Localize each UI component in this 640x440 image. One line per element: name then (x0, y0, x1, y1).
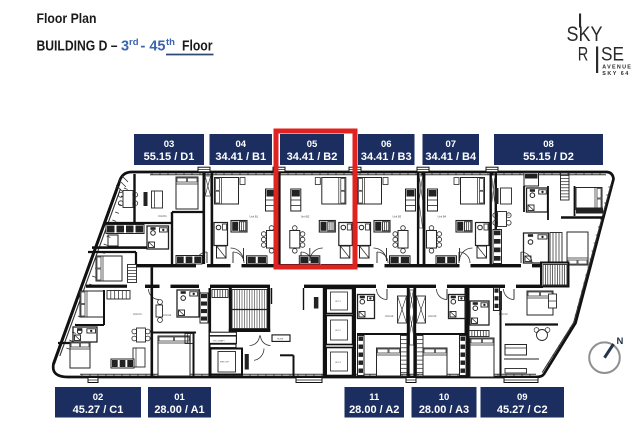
svg-text:34.41 / B3: 34.41 / B3 (361, 151, 412, 163)
svg-text:45.27 / C1: 45.27 / C1 (73, 404, 124, 416)
svg-text:HOSE: HOSE (277, 339, 284, 341)
svg-text:28.00 / A2: 28.00 / A2 (349, 404, 399, 416)
svg-text:28.00 / A1: 28.00 / A1 (154, 404, 204, 416)
svg-text:FIRE LIFT: FIRE LIFT (220, 362, 230, 364)
svg-text:Unit B2: Unit B2 (301, 215, 310, 219)
svg-text:LIFT-3: LIFT-3 (335, 362, 342, 364)
svg-text:Unit A3: Unit A3 (428, 314, 437, 318)
svg-text:07: 07 (445, 139, 456, 150)
svg-text:08: 08 (543, 139, 554, 150)
svg-text:SKY 64: SKY 64 (602, 71, 629, 77)
svg-text:rd: rd (129, 37, 139, 48)
svg-text:SKY: SKY (567, 22, 603, 46)
svg-text:Unit D1: Unit D1 (158, 214, 167, 218)
svg-text:Unit A2: Unit A2 (385, 314, 394, 318)
svg-text:Unit B4: Unit B4 (438, 215, 447, 219)
svg-text:06: 06 (381, 139, 392, 150)
svg-text:th: th (166, 37, 175, 48)
svg-text:03: 03 (164, 139, 175, 150)
svg-text:N: N (617, 336, 624, 347)
svg-text:05: 05 (307, 139, 318, 150)
svg-text:Floor Plan: Floor Plan (37, 10, 97, 26)
svg-text:09: 09 (517, 392, 528, 403)
svg-text:3: 3 (121, 39, 129, 55)
svg-text:11: 11 (369, 392, 380, 403)
svg-text:34.41 / B2: 34.41 / B2 (287, 151, 338, 163)
svg-text:55.15 / D2: 55.15 / D2 (523, 151, 574, 163)
svg-text:34.41 / B4: 34.41 / B4 (425, 151, 477, 163)
svg-text:02: 02 (93, 392, 104, 403)
svg-text:10: 10 (439, 392, 450, 403)
svg-text:AVENUE: AVENUE (602, 65, 632, 71)
svg-text:Unit B1: Unit B1 (250, 215, 259, 219)
svg-text:R: R (578, 45, 589, 66)
svg-text:SE: SE (601, 45, 624, 66)
svg-text:Unit A1: Unit A1 (163, 313, 172, 317)
svg-text:28.00 / A3: 28.00 / A3 (419, 404, 469, 416)
svg-text:LIFT-2: LIFT-2 (335, 330, 342, 332)
svg-text:34.41 / B1: 34.41 / B1 (215, 151, 266, 163)
svg-text:BUILDING D –: BUILDING D – (37, 39, 118, 55)
svg-text:Floor: Floor (182, 39, 213, 55)
svg-text:01: 01 (174, 392, 185, 403)
svg-text:- 45: - 45 (141, 39, 166, 55)
svg-text:55.15 / D1: 55.15 / D1 (144, 151, 195, 163)
svg-text:LIFT-1: LIFT-1 (335, 301, 342, 303)
svg-text:TEL SHAFT: TEL SHAFT (213, 339, 225, 342)
svg-text:Unit C1: Unit C1 (133, 312, 142, 316)
svg-text:04: 04 (235, 139, 246, 150)
svg-text:Unit B3: Unit B3 (393, 215, 402, 219)
svg-text:45.27 / C2: 45.27 / C2 (497, 404, 548, 416)
